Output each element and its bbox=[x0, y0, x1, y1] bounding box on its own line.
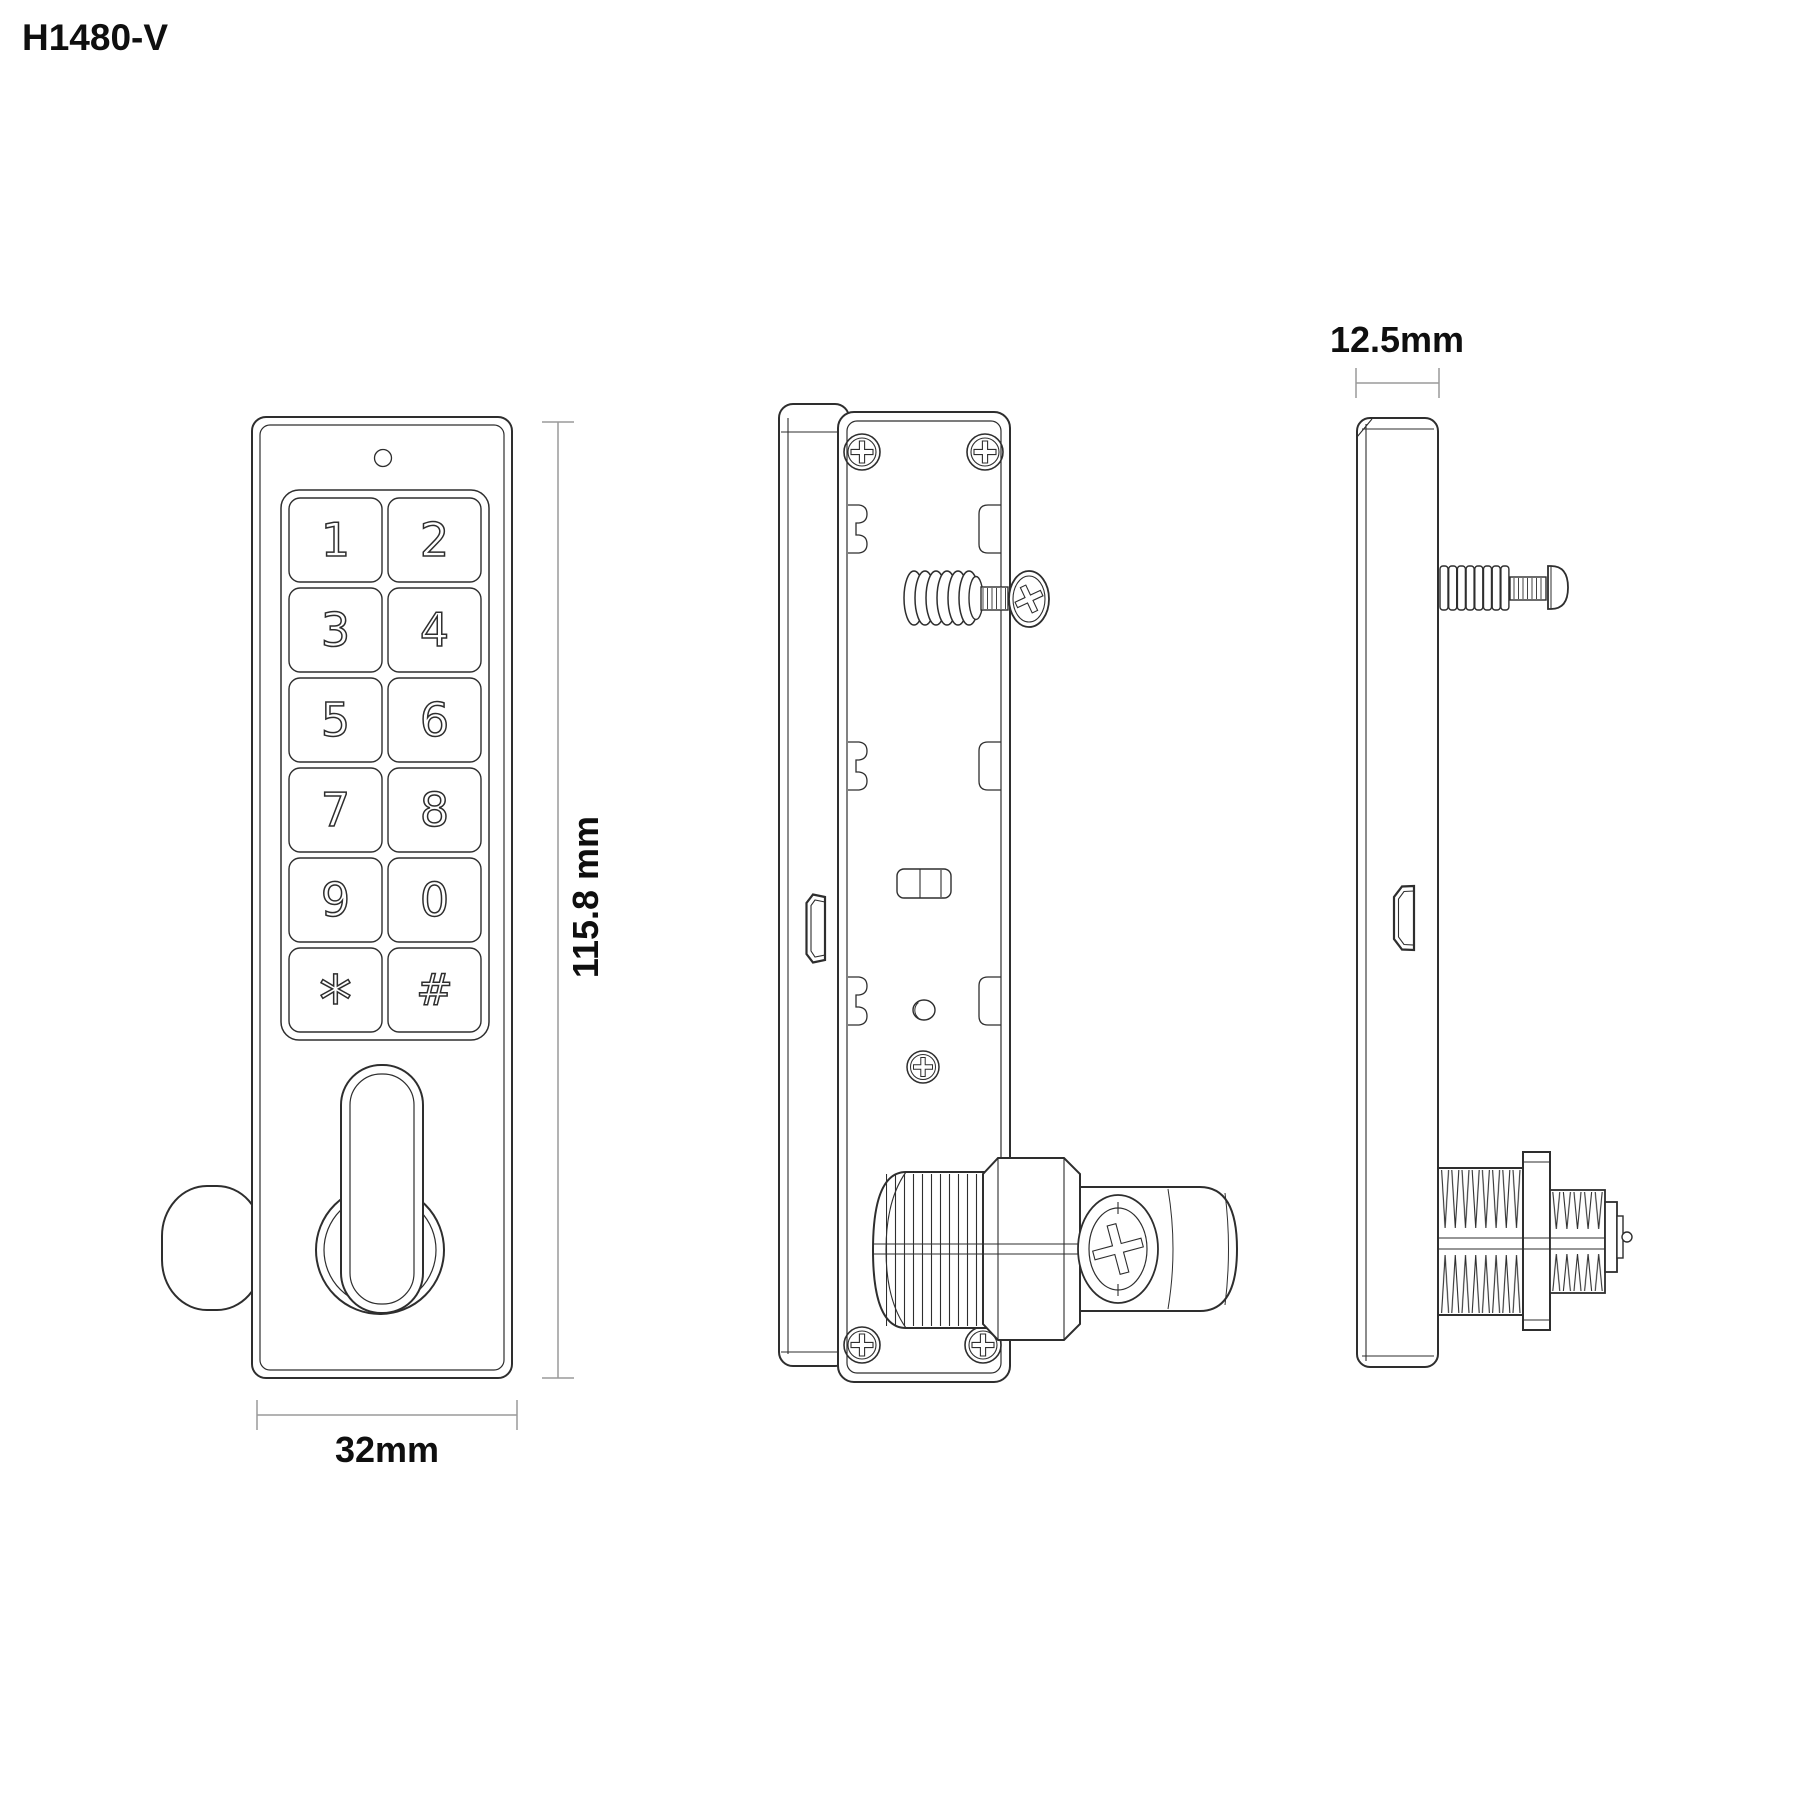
svg-text:4: 4 bbox=[420, 603, 449, 657]
stem-threads bbox=[1550, 1190, 1605, 1293]
height-dimension: 115.8 mm bbox=[542, 422, 606, 1378]
height-dimension-label: 115.8 mm bbox=[565, 816, 606, 978]
svg-text:7: 7 bbox=[321, 783, 350, 837]
technical-drawing-canvas: H1480-V 1 2 3 4 bbox=[0, 0, 1800, 1800]
drawing-page: H1480-V 1 2 3 4 bbox=[0, 0, 1800, 1800]
svg-text:0: 0 bbox=[420, 873, 449, 927]
svg-text:3: 3 bbox=[321, 603, 350, 657]
model-number: H1480-V bbox=[22, 17, 168, 58]
hex-nut bbox=[983, 1158, 1080, 1340]
svg-text:6: 6 bbox=[420, 693, 449, 747]
fixing-screw-stud bbox=[904, 571, 1049, 627]
svg-text:5: 5 bbox=[321, 693, 350, 747]
back-view bbox=[779, 404, 1237, 1382]
side-view: 12.5mm bbox=[1330, 319, 1632, 1367]
depth-dimension: 12.5mm bbox=[1330, 319, 1464, 398]
depth-dimension-label: 12.5mm bbox=[1330, 319, 1464, 360]
cam-lock-side bbox=[1438, 1152, 1632, 1330]
barrel-flange bbox=[1523, 1152, 1550, 1330]
svg-text:1: 1 bbox=[321, 513, 350, 567]
svg-text:2: 2 bbox=[420, 513, 449, 567]
fixing-screw-head bbox=[1009, 571, 1049, 627]
fixing-screw-head-side bbox=[1548, 566, 1568, 609]
lock-cylinder-face bbox=[1078, 1195, 1158, 1303]
svg-text:#: # bbox=[416, 965, 453, 1016]
cam-lock-barrel bbox=[873, 1172, 998, 1328]
stem-tip bbox=[1605, 1202, 1632, 1272]
front-view: 1 2 3 4 5 6 7 bbox=[162, 417, 606, 1470]
lock-cam bbox=[162, 1186, 262, 1310]
knob-handle bbox=[341, 1065, 423, 1313]
fixing-screw-stud-side bbox=[1440, 566, 1568, 610]
svg-text:8: 8 bbox=[420, 783, 449, 837]
width-dimension: 32mm bbox=[257, 1400, 517, 1470]
svg-text:9: 9 bbox=[321, 873, 350, 927]
svg-text:*: * bbox=[319, 962, 352, 1039]
width-dimension-label: 32mm bbox=[335, 1429, 439, 1470]
detent-pin bbox=[1622, 1232, 1632, 1242]
